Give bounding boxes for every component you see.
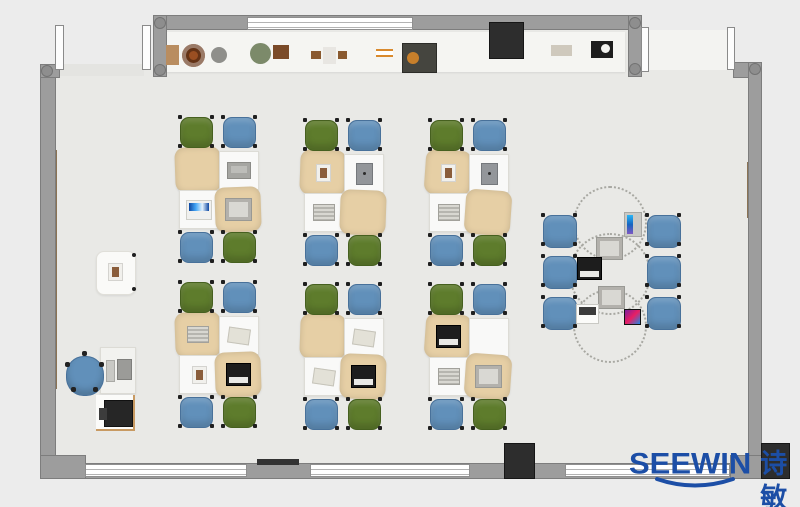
- photo-on-desk: [192, 366, 207, 384]
- shelf-item-white-box: [323, 47, 336, 64]
- seewin-logo: SEEWIN 诗敏: [629, 447, 800, 507]
- laptop-black-on-desk: [351, 365, 376, 388]
- structural-pillar: [489, 22, 524, 59]
- wall-corner-post: [41, 65, 53, 77]
- student-chair-blue: [305, 399, 338, 430]
- desk-fabric-cover: [174, 146, 222, 193]
- shelf-item-orange-rails: [376, 49, 393, 57]
- teacher-monitor: [117, 359, 132, 380]
- laptop-black-on-desk: [436, 325, 461, 348]
- structural-pillar: [504, 443, 535, 479]
- student-chair-green: [180, 117, 213, 148]
- student-chair-blue: [430, 399, 463, 430]
- student-chair-blue: [473, 284, 506, 315]
- laptop-black-device: [577, 257, 602, 280]
- shelf-item-storage-box: [166, 45, 179, 65]
- photo-on-desk: [441, 164, 456, 182]
- student-chair-green: [430, 284, 463, 315]
- printer-device: [104, 400, 133, 427]
- teacher-office-chair: [66, 356, 104, 396]
- student-chair-green: [348, 235, 381, 266]
- window-pane-line: [248, 27, 412, 28]
- discussion-chair-blue: [647, 256, 681, 289]
- door-leaf: [55, 25, 64, 70]
- book-on-desk: [438, 204, 460, 221]
- student-chair-green: [223, 397, 256, 428]
- student-chair-blue: [430, 235, 463, 266]
- book-on-desk: [313, 204, 335, 221]
- door-leaf: [641, 27, 649, 72]
- book-on-desk: [438, 368, 460, 385]
- shelf-item-wood-block-b: [338, 51, 347, 59]
- student-desk: [469, 318, 509, 357]
- laptop-white-device: [576, 304, 599, 324]
- discussion-chair-blue: [647, 215, 681, 248]
- student-chair-blue: [180, 232, 213, 263]
- teacher-keyboard: [106, 360, 115, 382]
- wall-corner-post: [629, 63, 641, 75]
- shelf-item-photo-frame: [273, 45, 289, 59]
- book-on-desk: [187, 326, 209, 343]
- table-leg-dot: [132, 253, 136, 257]
- phone-device: [624, 309, 641, 325]
- student-chair-blue: [180, 397, 213, 428]
- student-chair-blue: [223, 282, 256, 313]
- wall-corner-post: [154, 17, 166, 29]
- student-chair-green: [473, 235, 506, 266]
- laptop-black-on-desk: [226, 363, 251, 386]
- student-chair-blue: [348, 284, 381, 315]
- wall-corner-post: [749, 63, 761, 75]
- shelf-item-wood-block-a: [311, 51, 321, 59]
- shelf-item-toolbox: [402, 43, 437, 73]
- paper-on-desk: [227, 327, 251, 346]
- window-pane-line: [311, 474, 469, 475]
- student-chair-blue: [305, 235, 338, 266]
- laptop-blue-on-desk: [186, 200, 212, 220]
- student-chair-green: [305, 284, 338, 315]
- shelf-item-camera-device: [591, 41, 613, 58]
- paper-on-desk: [312, 368, 336, 387]
- seewin-logo-swoosh: [653, 476, 737, 490]
- paper-on-desk: [352, 329, 376, 348]
- wall-corner-post: [629, 17, 641, 29]
- table-leg-dot: [132, 287, 136, 291]
- tablet-on-desk: [481, 163, 498, 185]
- desk-fabric-cover: [463, 188, 512, 236]
- photo-on-desk: [316, 164, 331, 182]
- shelf-item-stone-bowl: [211, 47, 227, 63]
- shelf-item-small-tray: [551, 45, 572, 56]
- wall-corner-post: [154, 64, 166, 76]
- student-chair-green: [348, 399, 381, 430]
- student-chair-green: [473, 399, 506, 430]
- student-chair-green: [223, 232, 256, 263]
- floor-plan-canvas: SEEWIN 诗敏: [0, 0, 800, 507]
- desk-fabric-cover: [339, 189, 387, 236]
- shelf-item-plant-pot: [250, 43, 271, 64]
- bottom-window: [85, 464, 247, 477]
- door-leaf: [727, 27, 735, 70]
- shelf-item-round-plate: [182, 44, 205, 67]
- student-chair-green: [430, 120, 463, 151]
- discussion-chair-blue: [647, 297, 681, 330]
- door-leaf: [142, 25, 151, 70]
- laptop-gray-on-desk: [227, 162, 251, 179]
- window-pane-line: [86, 474, 246, 475]
- discussion-chair-blue: [543, 215, 577, 248]
- student-chair-blue: [223, 117, 256, 148]
- tablet-on-desk: [356, 163, 373, 185]
- photo-on-desk: [108, 263, 123, 281]
- book-gray-on-desk: [475, 365, 502, 388]
- bottom-window: [310, 464, 470, 477]
- student-chair-blue: [348, 120, 381, 151]
- discussion-chair-blue: [543, 256, 577, 289]
- seewin-logo-chinese: 诗敏: [760, 447, 800, 507]
- book-gray-on-desk: [225, 198, 252, 221]
- book-gray-device: [598, 286, 625, 309]
- window-pane-line: [311, 469, 469, 470]
- window-pane-line: [248, 22, 412, 23]
- student-chair-green: [180, 282, 213, 313]
- discussion-chair-blue: [543, 297, 577, 330]
- student-chair-green: [305, 120, 338, 151]
- window-pane-line: [86, 469, 246, 470]
- desk-fabric-cover: [299, 313, 347, 360]
- tablet-blue-device: [624, 212, 642, 237]
- top-window: [247, 17, 413, 30]
- student-chair-blue: [473, 120, 506, 151]
